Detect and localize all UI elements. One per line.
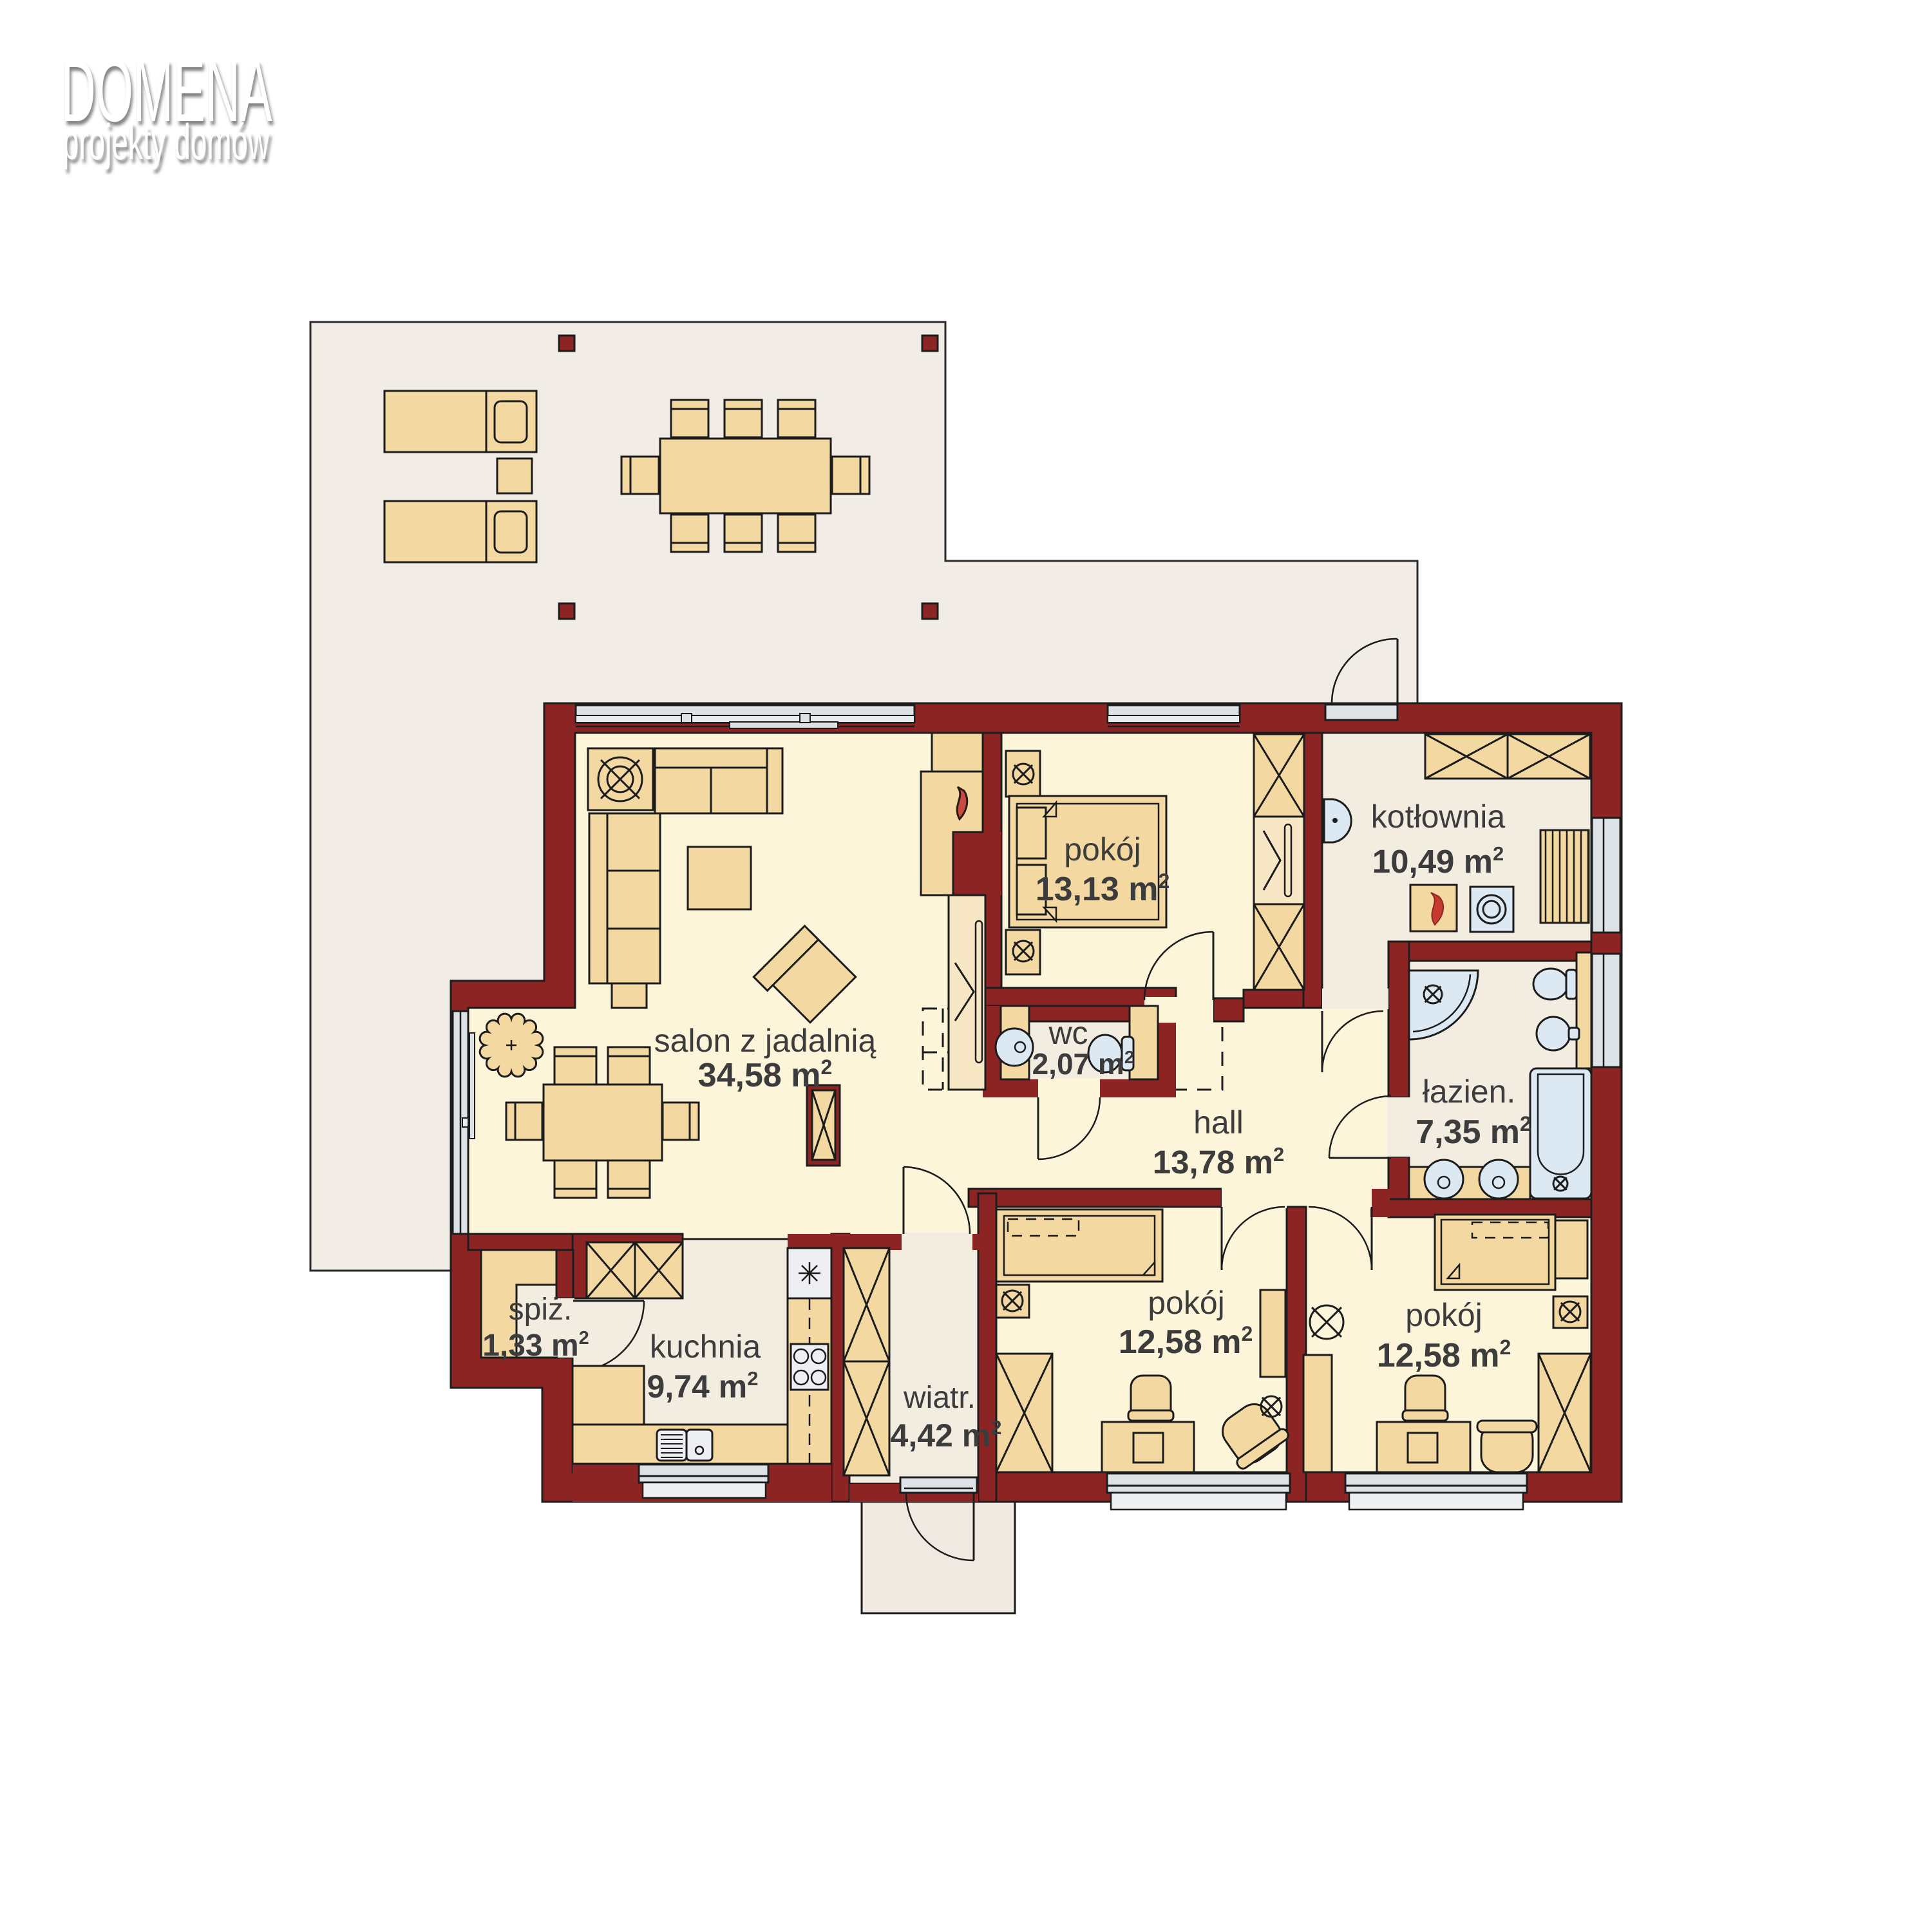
svg-text:13,78 m2: 13,78 m2 [1153,1143,1284,1180]
svg-text:pokój: pokój [1064,831,1141,867]
svg-text:wiatr.: wiatr. [903,1381,976,1415]
svg-text:2,07 m2: 2,07 m2 [1032,1047,1135,1081]
svg-text:34,58 m2: 34,58 m2 [698,1056,833,1094]
svg-text:projekty domów: projekty domów [62,113,270,170]
svg-text:wc: wc [1048,1015,1088,1051]
svg-text:pokój: pokój [1405,1297,1482,1333]
svg-text:1,33 m2: 1,33 m2 [482,1328,589,1363]
svg-text:pokój: pokój [1148,1285,1225,1321]
svg-text:7,35 m2: 7,35 m2 [1416,1112,1531,1151]
svg-text:10,49 m2: 10,49 m2 [1372,842,1504,880]
svg-text:13,13 m2: 13,13 m2 [1036,869,1170,908]
svg-text:kotłownia: kotłownia [1371,799,1506,835]
svg-text:12,58 m2: 12,58 m2 [1377,1336,1511,1374]
svg-text:kuchnia: kuchnia [650,1329,761,1365]
svg-text:salon z jadalnią: salon z jadalnią [654,1023,876,1059]
svg-text:9,74 m2: 9,74 m2 [647,1367,759,1405]
svg-text:12,58 m2: 12,58 m2 [1119,1322,1253,1361]
svg-text:4,42 m2: 4,42 m2 [891,1416,1002,1454]
svg-text:spiż.: spiż. [509,1293,573,1327]
svg-text:łazien.: łazien. [1423,1074,1516,1110]
svg-text:hall: hall [1193,1104,1244,1141]
